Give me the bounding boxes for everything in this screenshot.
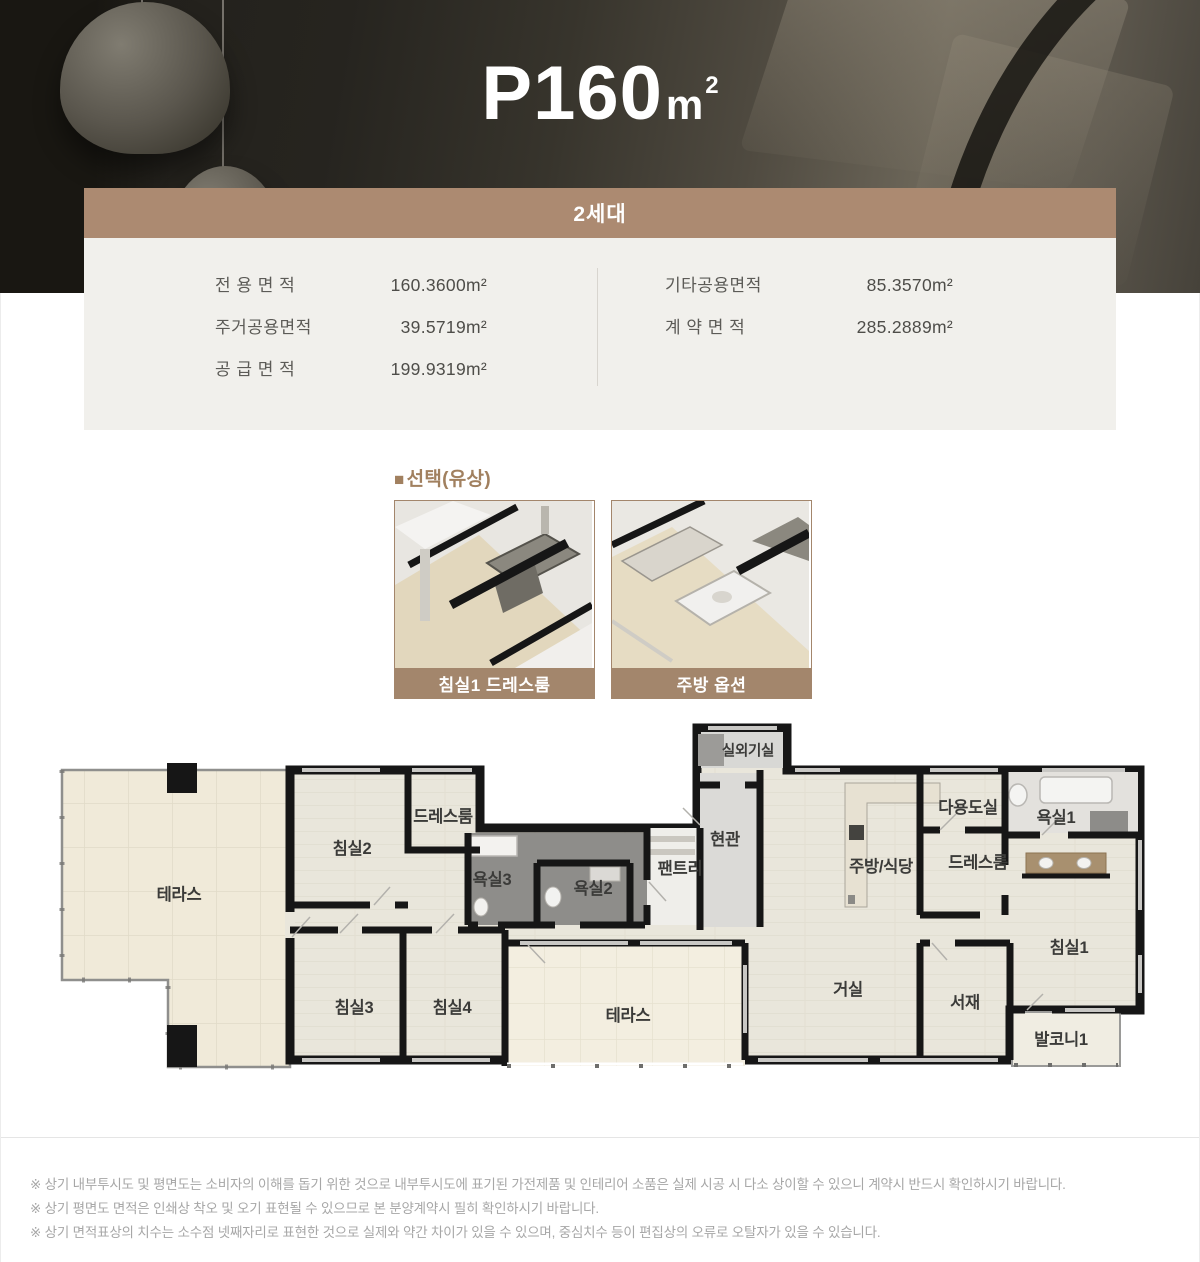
area-value: 160.3600m² (391, 275, 487, 296)
floor-plan-drawing (40, 715, 1160, 1100)
area-label: 공 급 면 적 (215, 355, 295, 380)
option-thumbnail-dressroom[interactable]: 침실1 드레스룸 (394, 500, 595, 699)
area-row: 공 급 면 적199.9319m² (215, 355, 487, 379)
area-row: 기타공용면적85.3570m² (665, 271, 953, 295)
area-table-left-column: 전 용 면 적160.3600m² 주거공용면적39.5719m² 공 급 면 … (215, 271, 487, 397)
area-label: 기타공용면적 (665, 271, 762, 296)
disclaimer-line: ※ 상기 면적표상의 치수는 소수점 넷째자리로 표현한 것으로 실제와 약간 … (30, 1221, 1170, 1244)
thumbnail-caption: 침실1 드레스룸 (395, 668, 594, 698)
page-left-border (0, 293, 1, 1262)
area-row: 전 용 면 적160.3600m² (215, 271, 487, 295)
generation-label: 2세대 (573, 198, 626, 228)
disclaimer-line: ※ 상기 평면도 면적은 인쇄상 착오 및 오기 표현될 수 있으므로 본 분양… (30, 1197, 1170, 1220)
area-label: 전 용 면 적 (215, 271, 295, 296)
area-row: 계 약 면 적285.2889m² (665, 313, 953, 337)
floor-plan: 테라스침실2드레스룸욕실3욕실2팬트리현관실외기실주방/식당다용도실욕실1드레스… (40, 715, 1160, 1100)
terrace-left-floor (62, 763, 290, 1067)
area-table-right-column: 기타공용면적85.3570m² 계 약 면 적285.2889m² (665, 271, 953, 355)
area-value: 85.3570m² (867, 275, 953, 296)
disclaimer-line: ※ 상기 내부투시도 및 평면도는 소비자의 이해를 돕기 위한 것으로 내부투… (30, 1173, 1170, 1196)
paid-options-section: ■선택(유상) (394, 464, 812, 699)
disclaimer-section: ※ 상기 내부투시도 및 평면도는 소비자의 이해를 돕기 위한 것으로 내부투… (0, 1137, 1200, 1262)
area-label: 계 약 면 적 (665, 313, 745, 338)
option-thumbnail-kitchen[interactable]: 주방 옵션 (611, 500, 812, 699)
thumbnail-caption: 주방 옵션 (612, 668, 811, 698)
dressroom-render-image (395, 501, 592, 668)
area-table: 전 용 면 적160.3600m² 주거공용면적39.5719m² 공 급 면 … (84, 238, 1116, 430)
kitchen-render-art (612, 501, 809, 668)
section-title: ■선택(유상) (394, 464, 812, 491)
area-value: 285.2889m² (857, 317, 953, 338)
column-divider (597, 268, 598, 386)
page: P160m2 2세대 전 용 면 적160.3600m² 주거공용면적39.57… (0, 0, 1200, 1262)
dressroom-render-art (395, 501, 592, 668)
area-value: 199.9319m² (391, 359, 487, 380)
area-info-card: 2세대 전 용 면 적160.3600m² 주거공용면적39.5719m² 공 … (84, 188, 1116, 430)
generation-header: 2세대 (84, 188, 1116, 238)
square-bullet-icon: ■ (394, 470, 405, 489)
kitchen-render-image (612, 501, 809, 668)
option-thumbnails: 침실1 드레스룸 주방 옵션 (394, 500, 812, 699)
section-title-text: 선택(유상) (407, 469, 491, 490)
area-label: 주거공용면적 (215, 313, 312, 338)
area-row: 주거공용면적39.5719m² (215, 313, 487, 337)
area-value: 39.5719m² (401, 317, 487, 338)
plan-type-title: P160m2 (0, 56, 1200, 132)
